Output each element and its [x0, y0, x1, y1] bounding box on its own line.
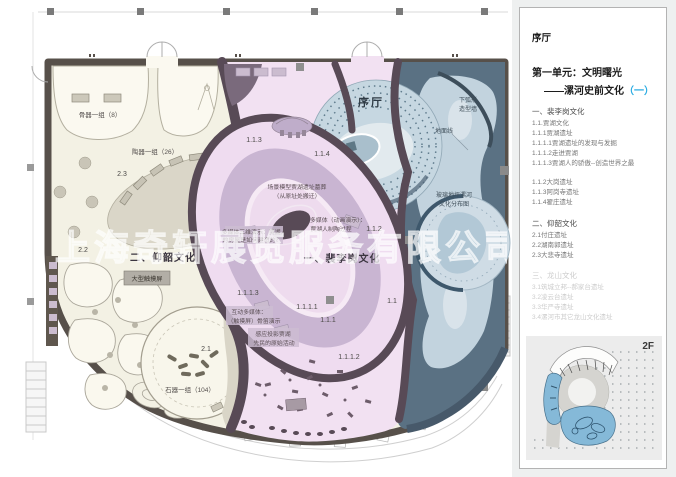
label-multimedia-animation-line1: 多媒体（动画演示）：	[310, 216, 366, 224]
label-area-1-1-1-1: 1.1.1.1	[296, 304, 318, 311]
legend-item: 1.1.2大岗遗址	[532, 178, 658, 188]
page: 序厅 骨器一组（8） 陶器一组（26） 2.3 2.2 二、仰韶文化 大型触摸屏…	[0, 0, 676, 477]
legend-item: 3.1筑城立邦--郝家台遗址	[532, 283, 658, 293]
legend-unit-title: 第一单元：文明曙光	[532, 64, 658, 79]
legend-group-longshan: 三、龙山文化 3.1筑城立邦--郝家台遗址 3.2凌云台遗址 3.3华严寺遗址 …	[532, 270, 658, 323]
wall-fixture	[500, 166, 509, 175]
legend-group-heading: 二、仰韶文化	[532, 218, 658, 229]
legend-item: 1.1.1贾湖遗址	[532, 129, 658, 139]
label-projection-line1: 感应投影贾湖	[255, 330, 290, 338]
key-plan: 2F	[526, 336, 662, 460]
label-area-2-2: 2.2	[78, 247, 88, 254]
right-strip: 序厅 第一单元：文明曙光 ——漯河史前文化（一） 一、裴李岗文化 1.1.贾湖文…	[512, 0, 676, 477]
legend-item: 1.1.1.2走进贾湖	[532, 149, 658, 159]
label-large-touchscreen: 大型触摸屏	[132, 275, 163, 283]
label-ground-line: 地面线	[435, 127, 453, 135]
legend-group-heading: 三、龙山文化	[532, 270, 658, 281]
legend-group-yangshao: 二、仰韶文化 2.1付庄遗址 2.2湖南郭遗址 2.3大悲寺遗址	[532, 218, 658, 261]
legend-item: 2.2湖南郭遗址	[532, 241, 658, 251]
legend-group-jiahu-sites: 1.1.2大岗遗址 1.1.3阿岗寺遗址 1.1.4翟庄遗址	[532, 178, 658, 208]
label-area-1-1-3: 1.1.3	[246, 137, 262, 144]
label-arc-wall-line1: 下弧形	[459, 96, 477, 104]
legend-item: 3.2凌云台遗址	[532, 293, 658, 303]
floor-plan: 序厅 骨器一组（8） 陶器一组（26） 2.3 2.2 二、仰韶文化 大型触摸屏…	[0, 0, 520, 477]
zone-title-peiligang: 一、裴李岗文化	[304, 252, 381, 265]
legend-item: 1.1.1.3贾湖人的骄傲--创造世界之最	[532, 159, 658, 169]
label-interactive-multimedia-line2: （触摸屏）骨笛演示	[227, 317, 280, 325]
legend-item: 1.1.贾湖文化	[532, 119, 658, 129]
legend-unit-subtitle: ——漯河史前文化（一）	[544, 82, 658, 97]
legend-item: 1.1.1.1贾湖遗址的发现与发掘	[532, 139, 658, 149]
legend-item: 3.3华严寺遗址	[532, 303, 658, 313]
plan-title-hall: 序厅	[358, 95, 384, 109]
label-area-2-3: 2.3	[117, 171, 127, 178]
label-multimedia-3d-line1: 多媒体三维演示：贾湖人	[222, 228, 287, 236]
label-stone-tools-group: 石器一组（104）	[165, 385, 215, 394]
stairs-bottom-left	[26, 362, 46, 432]
floor-label: 2F	[642, 341, 654, 352]
label-arc-wall-line2: 造型墙	[459, 105, 477, 113]
key-plan-drawing	[526, 336, 662, 460]
legend-item: 1.1.4翟庄遗址	[532, 198, 658, 208]
label-glass-floor-line2: 文化分布图	[439, 200, 469, 208]
legend-item: 2.3大悲寺遗址	[532, 251, 658, 261]
legend-unit-subtitle-number: （一）	[624, 86, 654, 97]
label-area-1-1: 1.1	[387, 298, 397, 305]
label-projection-line2: 先民的原始活动	[253, 339, 294, 347]
legend-item: 3.4漯河市其它龙山文化遗址	[532, 313, 658, 323]
label-bone-tools-group: 骨器一组（8）	[79, 110, 122, 119]
label-multimedia-animation-line2: 贾湖人制陶过程	[310, 225, 351, 233]
legend-panel: 序厅 第一单元：文明曙光 ——漯河史前文化（一） 一、裴李岗文化 1.1.贾湖文…	[519, 7, 667, 469]
zone-title-yangshao: 二、仰韶文化	[130, 251, 196, 264]
legend-item: 1.1.3阿岗寺遗址	[532, 188, 658, 198]
label-area-1-1-2: 1.1.2	[366, 226, 382, 233]
label-pottery-group: 陶器一组（26）	[132, 147, 178, 156]
label-area-1-1-1-2: 1.1.1.2	[338, 354, 360, 361]
label-scene-model-line1: 场景模型贾湖遗址墓葬	[268, 183, 327, 191]
legend-hall-title: 序厅	[532, 30, 658, 44]
label-area-1-1-4: 1.1.4	[314, 151, 330, 158]
label-interactive-multimedia-line1: 互动多媒体：	[231, 308, 266, 316]
label-area-2-1: 2.1	[201, 346, 211, 353]
legend-item: 2.1付庄遗址	[532, 231, 658, 241]
label-glass-floor-line1: 玻璃地坪漯河	[436, 191, 472, 199]
legend-group-peiligang: 一、裴李岗文化 1.1.贾湖文化 1.1.1贾湖遗址 1.1.1.1贾湖遗址的发…	[532, 106, 658, 169]
label-multimedia-3d-line2: 的房屋是如何建造的？	[223, 236, 282, 244]
label-scene-model-line2: （从原址处搬迁）	[273, 192, 320, 200]
legend-group-heading: 一、裴李岗文化	[532, 106, 658, 117]
legend-unit-subtitle-text: ——漯河史前文化	[544, 86, 624, 97]
label-area-1-1-1-3: 1.1.1.3	[237, 290, 259, 297]
label-area-1-1-1: 1.1.1	[320, 317, 336, 324]
